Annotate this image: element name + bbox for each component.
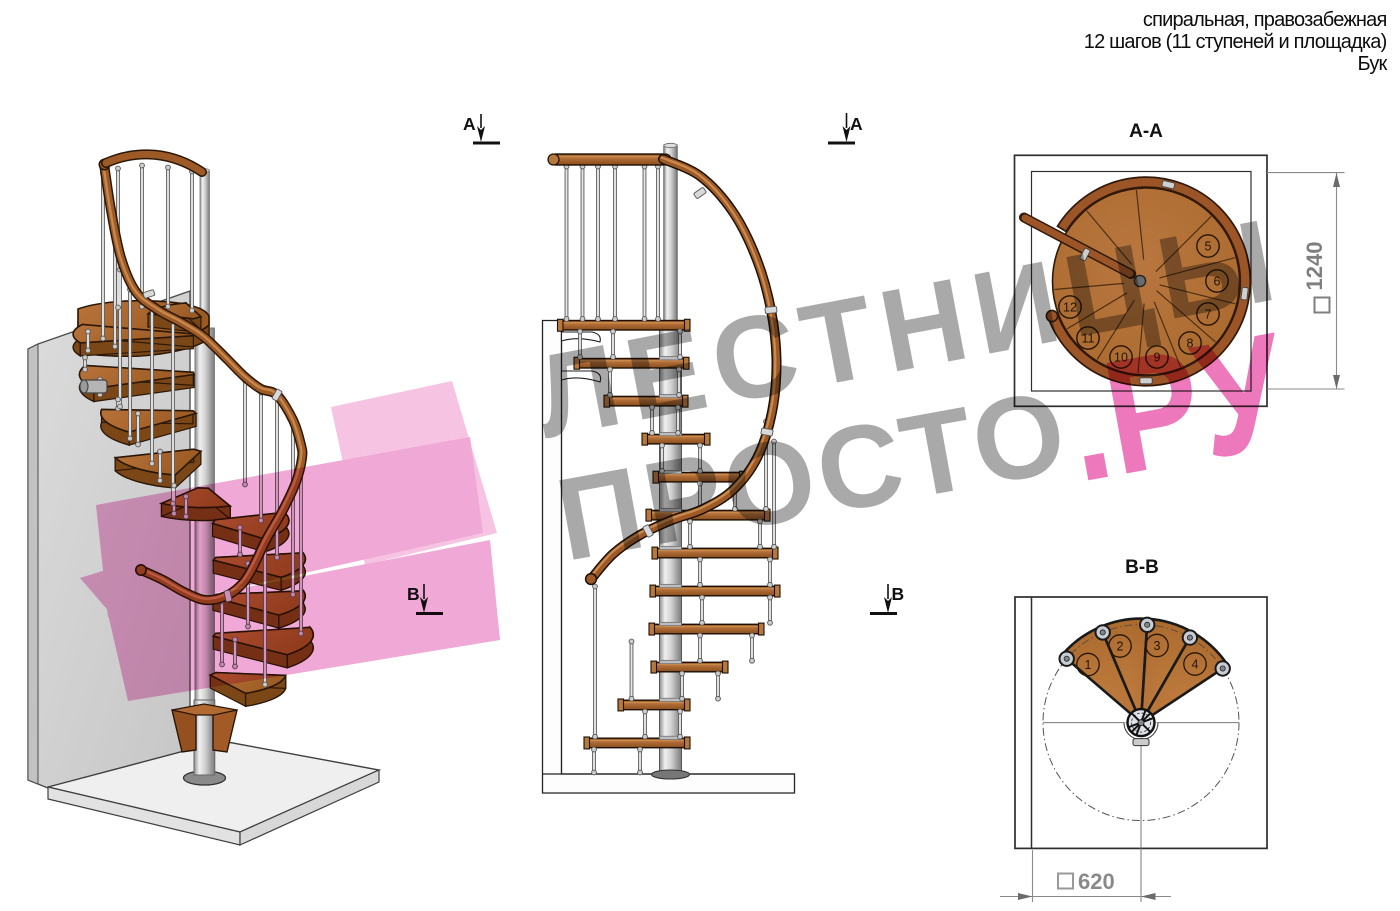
- svg-text:.РУ: .РУ: [1053, 297, 1302, 516]
